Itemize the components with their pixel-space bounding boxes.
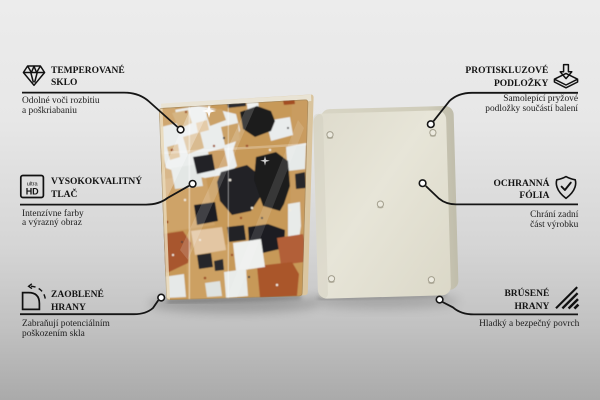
svg-text:HD: HD <box>26 187 39 197</box>
